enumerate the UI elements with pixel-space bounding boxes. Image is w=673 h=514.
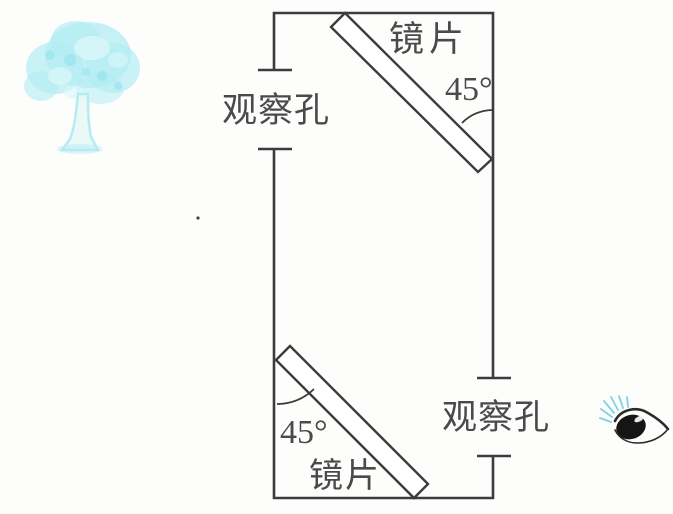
eye-icon bbox=[600, 396, 668, 443]
ink-speck bbox=[196, 216, 199, 219]
top-angle-label: 45° bbox=[445, 73, 493, 107]
tree-base bbox=[57, 144, 103, 154]
periscope-diagram: 镜片 45° 观察孔 45° 镜片 观察孔 bbox=[0, 0, 673, 514]
diagram-canvas bbox=[0, 0, 673, 514]
right-observation-hole-label: 观察孔 bbox=[442, 400, 550, 435]
top-mirror-label: 镜片 bbox=[389, 22, 469, 57]
left-observation-hole-label: 观察孔 bbox=[222, 93, 330, 128]
bottom-angle-label: 45° bbox=[280, 416, 328, 450]
bottom-mirror-label: 镜片 bbox=[309, 460, 381, 494]
tree-icon bbox=[24, 21, 140, 154]
top-angle-arc bbox=[462, 110, 493, 123]
